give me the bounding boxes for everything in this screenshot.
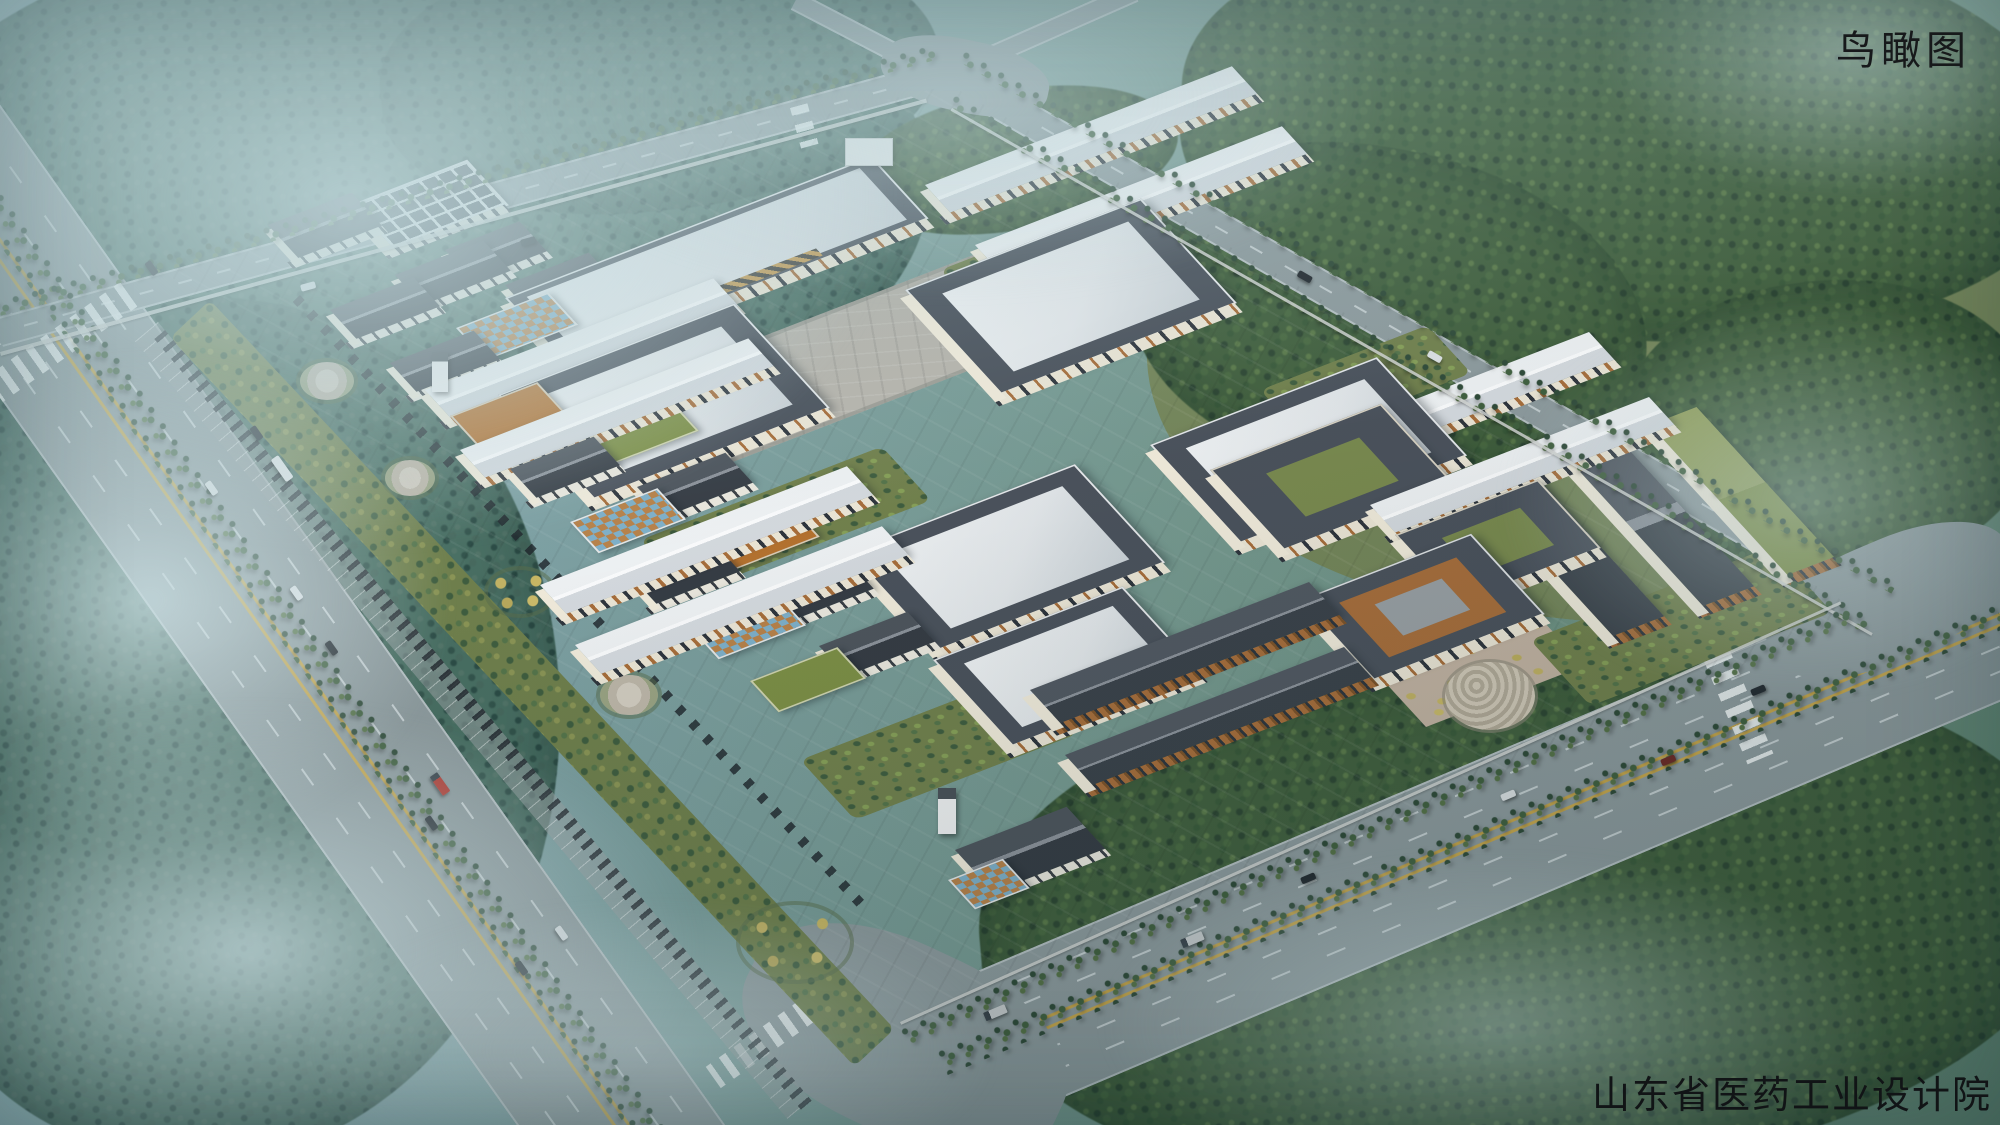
fog-layer [0,700,700,1125]
monitor-roof-workshop [505,156,929,360]
truck [1180,931,1205,948]
warehouse-long-building [975,126,1307,272]
fog-layer [1500,300,2000,700]
boundary-wall [0,99,927,356]
car [204,480,218,496]
central-plaza [560,242,1083,499]
warehouse-long-building [1370,397,1674,533]
factory-roof-top [942,222,1199,372]
car [1660,754,1677,766]
factory-building-large [933,587,1202,747]
car [324,640,338,656]
car [1750,684,1767,696]
car [144,260,158,276]
glass-conservatory [948,859,1030,910]
warehouse-long-building [540,466,873,614]
tree-row [945,92,1876,635]
fog-layer [500,0,1400,300]
fog-layer [300,900,1000,1125]
car [1300,872,1317,884]
clock-tower [938,788,956,834]
tree-row [898,603,1856,1048]
courtyard-building [1210,404,1455,551]
car [554,925,568,941]
admin-plaza [1360,594,1584,727]
parked-cars-row [154,330,814,1113]
crosswalk [790,103,818,148]
view-title-label: 鸟瞰图 [1836,18,1971,76]
dormitory-building [1470,460,1664,636]
car [424,815,438,831]
fog-layer [0,350,450,850]
crossroad-junction-north [874,23,1055,129]
fog-layer [0,0,900,550]
warehouse-long-building [925,66,1257,212]
glass-pavilion [690,594,806,659]
forest-patch [367,0,952,239]
factory-roof-top [526,168,907,349]
shop-building [510,437,620,498]
factory-building-large [905,199,1237,395]
shop-building [630,543,740,604]
clock-tower [432,352,448,392]
factory-building-large [1150,357,1467,543]
green-patch [1530,546,1832,706]
green-patch [640,446,931,594]
garden-circle [300,362,354,400]
factory-roof-top [964,606,1171,727]
warehouse-long-building [575,526,908,674]
shop-building [758,559,874,623]
crosswalk [706,980,843,1088]
forest-patch [1601,252,2000,608]
junction-south [711,882,1099,1125]
car [1427,350,1443,364]
perimeter-road-northeast [941,60,1887,620]
car [520,236,536,247]
dormitory-building [1560,430,1754,606]
forest-patch [0,257,617,1125]
birdseye-rendering: 鸟瞰图 山东省医药工业设计院 [0,0,2000,1125]
car [249,425,263,441]
courtyard-garden [1266,437,1400,517]
garden-circle [740,905,850,980]
shop-building [268,193,382,258]
green-patch [940,198,1176,324]
factory-roof-top [535,327,792,477]
warehouse-long-building [425,278,739,417]
forest-patch [959,613,2000,1125]
perimeter-road-northwest [0,61,943,347]
arterial-road-southeast [911,532,2000,1125]
road-branch-north-left [791,0,955,91]
factory-roof-top [884,486,1129,628]
car [514,960,528,976]
tree-row [935,603,2000,1076]
boundary-wall [900,601,1841,1024]
forest-patch [840,62,1189,257]
car [1500,789,1517,801]
crosswalk [1690,617,1773,764]
gatehouse [845,138,893,166]
parking-bays-strip [135,322,810,1119]
truck [430,772,451,796]
shop-building [395,241,511,305]
tree-row [0,60,779,1125]
entrance-hall-glass-grid [350,160,509,251]
lab-building [1065,647,1372,785]
admin-inner-court [1375,579,1471,636]
shop-building [516,347,632,411]
shop-building [819,612,935,676]
garden-circle [488,570,552,614]
warehouse-long-building [460,338,774,477]
lab-building [1030,582,1339,723]
shop-building [505,253,619,318]
shop-building [390,331,500,392]
arterial-road-west [0,20,809,1125]
shop-building-flat-orange-roof [450,382,566,447]
landscape-garden-strip [170,300,895,1067]
boundary-wall [951,108,1873,636]
campus-grounds [0,0,2000,1125]
courtyard-garden [1442,508,1554,575]
meadow [1123,16,2000,665]
shop-building [955,807,1105,892]
admin-building [1300,534,1545,681]
forest-patch [0,0,948,516]
parked-cars-row [293,295,866,909]
courtyard-building [1395,480,1601,604]
shop-building-flat-green-roof [577,398,699,466]
junction-east [1747,494,2000,706]
road-branch-north-right [952,0,1138,80]
car [300,281,316,292]
warehouse-long-building [1310,332,1614,468]
amphitheater [1445,662,1535,730]
green-patch [1260,325,1471,438]
shop-building [330,278,440,339]
factory-building-large [848,464,1165,650]
forest-patch [1105,107,1674,522]
truck [983,1004,1008,1021]
green-patch [800,674,1078,820]
garden-circle [385,460,435,496]
dormitory-building-green-roof [1650,407,1834,575]
glass-pavilion [570,488,686,553]
shop-building [637,453,753,517]
factory-roof-top [1186,379,1431,521]
garden-circle [600,675,658,715]
tree-row [0,41,940,317]
car [289,585,303,601]
design-institute-credit-label: 山东省医药工业设计院 [1592,1064,1992,1119]
glass-pavilion [456,292,578,360]
bus [271,455,294,482]
color-grade-overlay [0,0,2000,1125]
shop-building [445,221,547,280]
shop-building-flat-orange-roof [698,504,820,572]
loading-dock [664,248,823,314]
car [1297,270,1313,284]
factory-building-large [498,304,830,500]
crosswalk [0,282,137,402]
admin-facade-ring [1339,557,1506,657]
shop-building-flat-green-roof [750,647,866,712]
tree-row [958,48,1899,594]
